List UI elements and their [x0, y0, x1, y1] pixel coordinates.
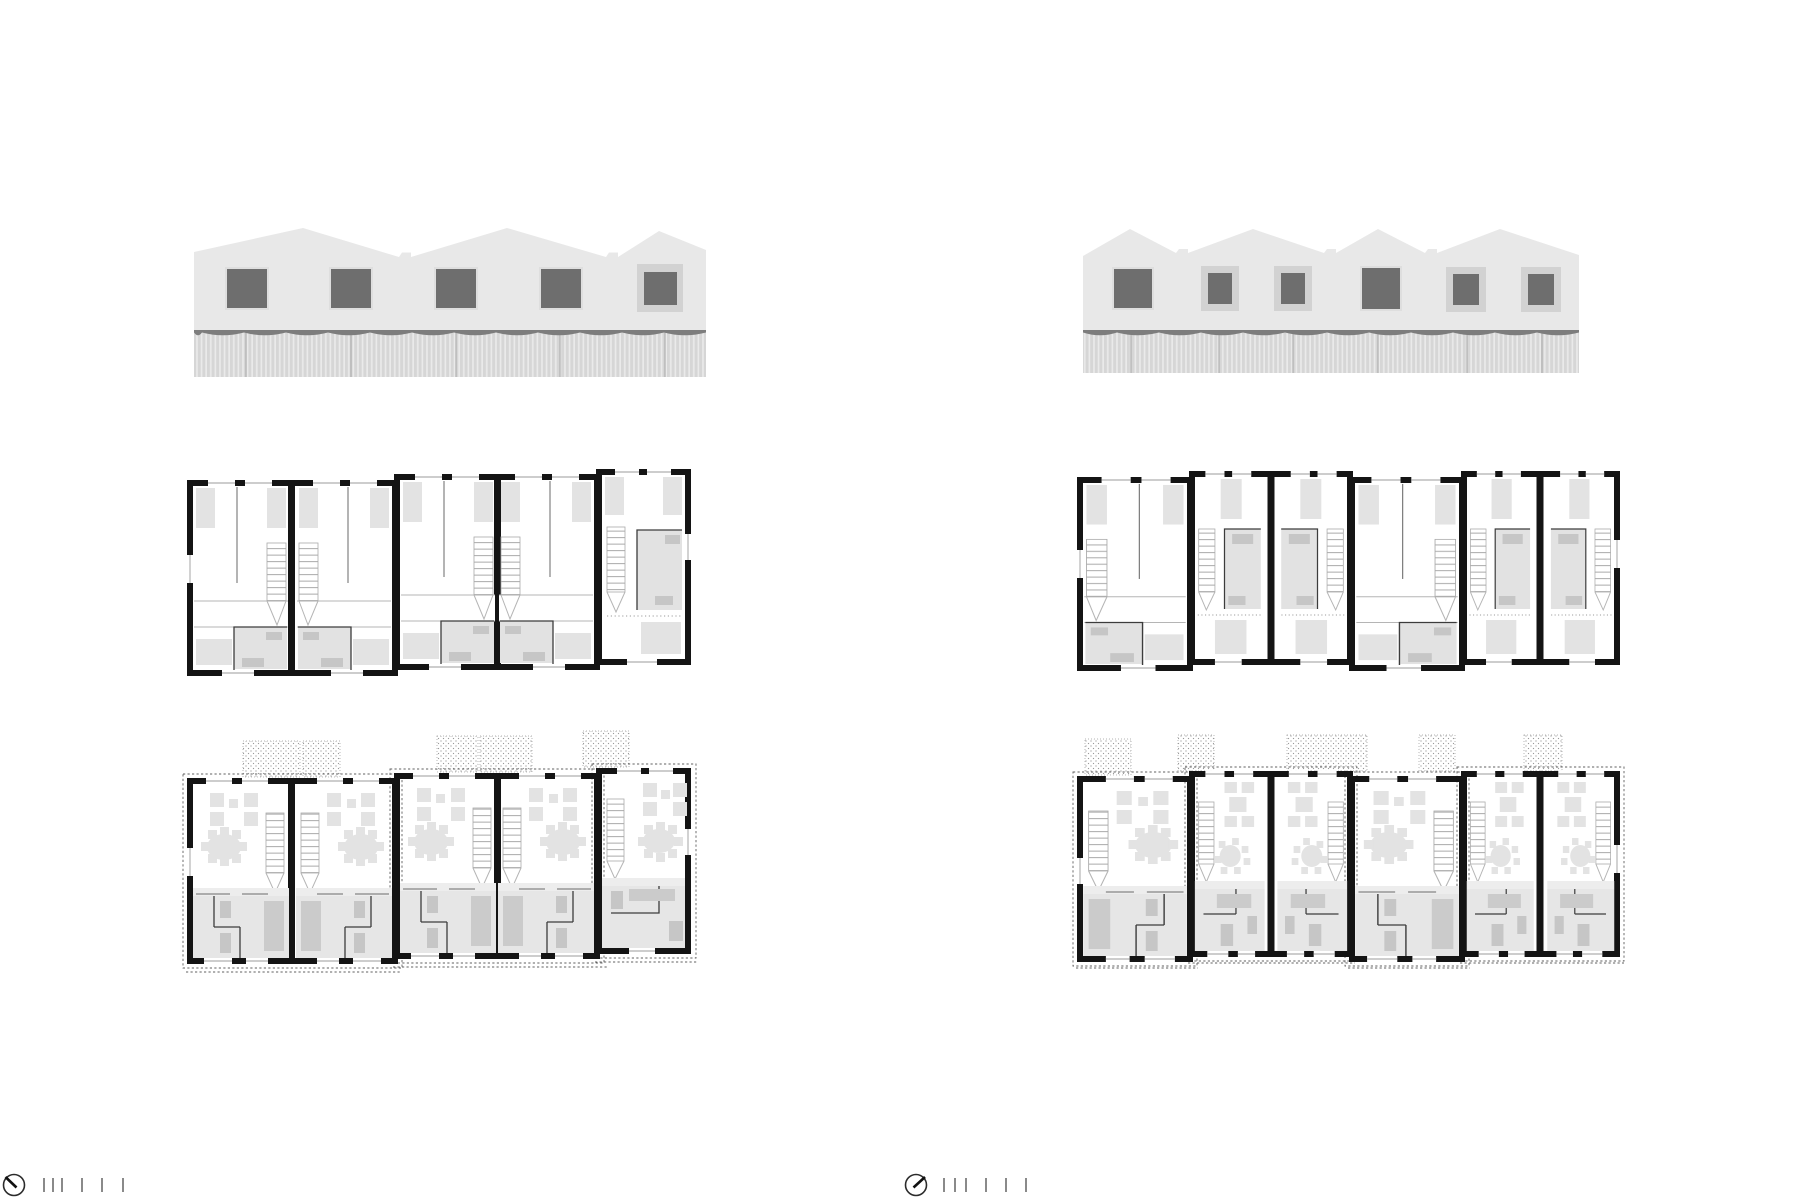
scale-bar-right [944, 1178, 1026, 1192]
north-arrow-left [4, 1175, 25, 1196]
terrace [437, 736, 478, 772]
house-unit [193, 777, 289, 964]
house-unit [1550, 470, 1611, 665]
north-arrow-right [906, 1175, 927, 1196]
house-unit [499, 473, 593, 670]
compass-needle-icon [914, 1177, 926, 1188]
house-unit [1084, 476, 1185, 671]
house-unit [1195, 770, 1265, 957]
fence-right [1083, 330, 1579, 373]
right-ground-floor-plan [1073, 735, 1624, 968]
house-unit [1467, 770, 1534, 957]
terrace [480, 736, 532, 772]
house-unit [296, 777, 392, 964]
terrace [1419, 735, 1455, 771]
scale-bar-left [44, 1178, 123, 1192]
fence-left [194, 330, 706, 377]
house-unit [1470, 470, 1531, 665]
house-unit [1356, 476, 1457, 671]
house-unit [194, 479, 288, 676]
left-elevation [194, 228, 706, 377]
house-unit [602, 767, 692, 954]
terrace [1524, 735, 1562, 771]
house-unit [400, 772, 496, 959]
house-unit [1198, 470, 1262, 665]
terrace [1085, 739, 1131, 775]
house-unit [1083, 775, 1187, 962]
house-unit [605, 468, 692, 665]
house-unit [1280, 470, 1344, 665]
facade-right [1083, 229, 1579, 332]
left-upper-floor-plan [186, 468, 691, 676]
right-upper-floor-plan [1076, 470, 1620, 671]
house-unit [401, 473, 495, 670]
house-unit [1355, 775, 1459, 962]
terrace [243, 741, 300, 777]
left-ground-floor-plan [183, 731, 698, 972]
house-unit [498, 772, 594, 959]
terrace [583, 731, 629, 767]
house-unit [297, 479, 391, 676]
terrace [1287, 735, 1367, 771]
architectural-drawing [0, 0, 1800, 1200]
right-elevation [1083, 229, 1579, 373]
terrace [1178, 735, 1214, 771]
house-unit [1547, 770, 1614, 957]
house-unit [1277, 770, 1347, 957]
compass-needle-icon [6, 1177, 17, 1188]
drawing-sheet [0, 0, 1800, 1200]
terrace [303, 741, 340, 777]
